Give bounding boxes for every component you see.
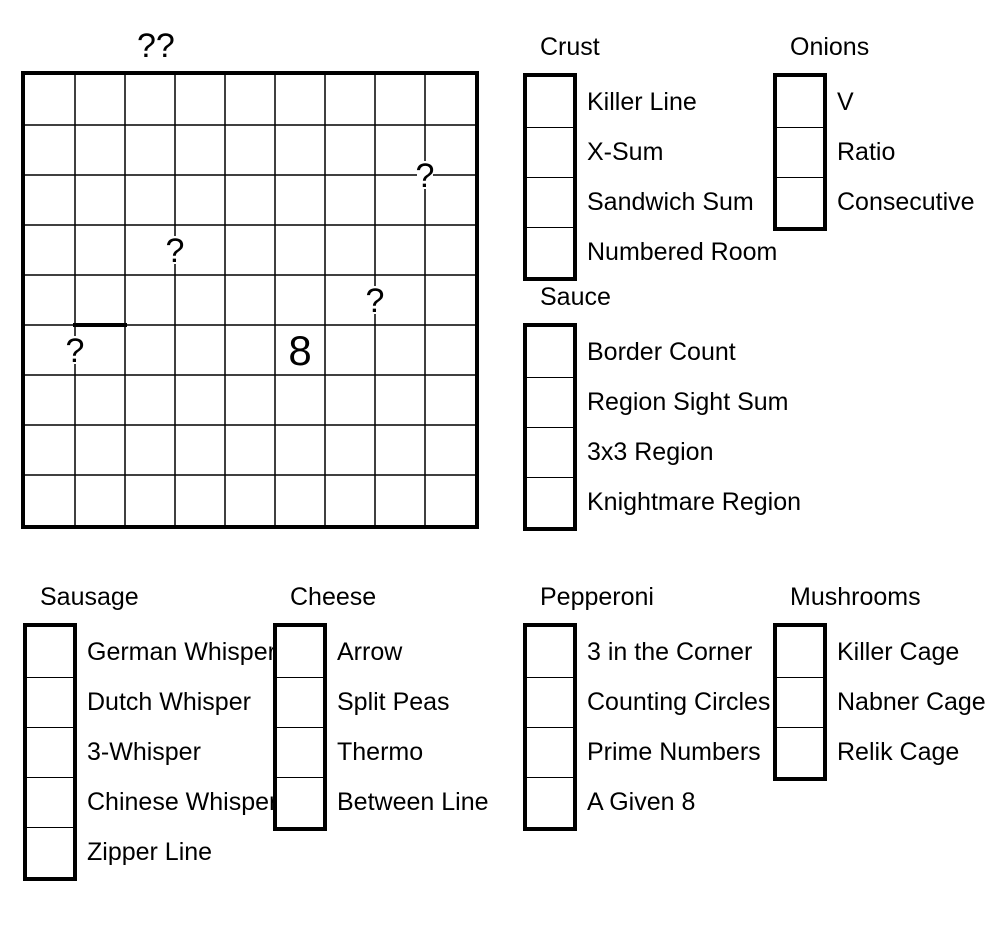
checkbox-sausage-1[interactable] xyxy=(27,627,73,677)
constraint-label-sauce-3: 3x3 Region xyxy=(587,427,801,477)
grid-cell[interactable] xyxy=(225,125,275,175)
checkbox-mushrooms-1[interactable] xyxy=(777,627,823,677)
checkbox-sauce-3[interactable] xyxy=(527,427,573,477)
grid-cell[interactable] xyxy=(125,125,175,175)
checkbox-column xyxy=(523,323,577,531)
checkbox-pepperoni-4[interactable] xyxy=(527,777,573,827)
checkbox-pepperoni-1[interactable] xyxy=(527,627,573,677)
constraint-label-cheese-2: Split Peas xyxy=(337,677,489,727)
grid-cell[interactable] xyxy=(325,175,375,225)
constraint-label-crust-2: X-Sum xyxy=(587,127,777,177)
grid-cell[interactable] xyxy=(125,425,175,475)
constraint-label-sauce-1: Border Count xyxy=(587,327,801,377)
grid-cell[interactable] xyxy=(375,425,425,475)
grid-cell[interactable] xyxy=(275,425,325,475)
checkbox-sauce-1[interactable] xyxy=(527,327,573,377)
grid-cell[interactable] xyxy=(325,125,375,175)
grid-cell[interactable] xyxy=(425,475,475,525)
constraint-group-sausage: Sausage German WhisperDutch Whisper3-Whi… xyxy=(23,583,277,881)
constraint-label-crust-1: Killer Line xyxy=(587,77,777,127)
group-title: Onions xyxy=(773,33,975,62)
checkbox-onions-1[interactable] xyxy=(777,77,823,127)
checkbox-crust-3[interactable] xyxy=(527,177,573,227)
constraint-label-sausage-5: Zipper Line xyxy=(87,827,277,877)
constraint-label-sausage-2: Dutch Whisper xyxy=(87,677,277,727)
grid-cell[interactable] xyxy=(325,475,375,525)
grid-cell[interactable] xyxy=(225,175,275,225)
grid-cell[interactable] xyxy=(75,375,125,425)
group-title: Mushrooms xyxy=(773,583,986,612)
given-digit: 8 xyxy=(288,327,311,374)
checkbox-mushrooms-3[interactable] xyxy=(777,727,823,777)
grid-cell[interactable] xyxy=(325,425,375,475)
group-title: Pepperoni xyxy=(523,583,770,612)
checkbox-pepperoni-3[interactable] xyxy=(527,727,573,777)
sudoku-grid[interactable]: ????8 xyxy=(21,71,479,529)
grid-cell[interactable] xyxy=(75,475,125,525)
label-column: German WhisperDutch Whisper3-WhisperChin… xyxy=(87,627,277,877)
checkbox-sauce-4[interactable] xyxy=(527,477,573,527)
checkbox-sausage-3[interactable] xyxy=(27,727,73,777)
group-title: Sauce xyxy=(523,283,801,312)
grid-cell[interactable] xyxy=(425,275,475,325)
checkbox-mushrooms-2[interactable] xyxy=(777,677,823,727)
grid-cell[interactable] xyxy=(275,175,325,225)
grid-cell[interactable] xyxy=(25,375,75,425)
constraint-label-cheese-4: Between Line xyxy=(337,777,489,827)
label-column: VRatioConsecutive xyxy=(837,77,975,227)
constraint-label-sausage-3: 3-Whisper xyxy=(87,727,277,777)
grid-cell[interactable] xyxy=(325,375,375,425)
grid-cell[interactable] xyxy=(275,225,325,275)
checkbox-column xyxy=(273,623,327,831)
grid-cell[interactable] xyxy=(275,475,325,525)
checkbox-onions-3[interactable] xyxy=(777,177,823,227)
grid-cell[interactable] xyxy=(175,75,225,125)
question-mark-clue: ? xyxy=(416,157,435,195)
constraint-group-onions: Onions VRatioConsecutive xyxy=(773,33,975,231)
grid-cell[interactable] xyxy=(375,225,425,275)
grid-cell[interactable] xyxy=(225,275,275,325)
grid-cell[interactable] xyxy=(75,125,125,175)
constraint-label-sauce-2: Region Sight Sum xyxy=(587,377,801,427)
grid-cell[interactable] xyxy=(225,475,275,525)
checkbox-pepperoni-2[interactable] xyxy=(527,677,573,727)
grid-cell[interactable] xyxy=(75,175,125,225)
constraint-group-crust: Crust Killer LineX-SumSandwich SumNumber… xyxy=(523,33,777,281)
checkbox-column xyxy=(523,73,577,281)
constraint-label-onions-2: Ratio xyxy=(837,127,975,177)
constraint-group-mushrooms: Mushrooms Killer CageNabner CageRelik Ca… xyxy=(773,583,986,781)
constraint-label-sausage-1: German Whisper xyxy=(87,627,277,677)
grid-cell[interactable] xyxy=(25,175,75,225)
grid-cell[interactable] xyxy=(275,125,325,175)
grid-cell[interactable] xyxy=(175,375,225,425)
grid-cell[interactable] xyxy=(125,75,175,125)
checkbox-column xyxy=(773,73,827,231)
grid-cell[interactable] xyxy=(425,375,475,425)
label-column: ArrowSplit PeasThermoBetween Line xyxy=(337,627,489,827)
grid-cell[interactable] xyxy=(175,125,225,175)
grid-cell[interactable] xyxy=(225,225,275,275)
grid-cell[interactable] xyxy=(75,75,125,125)
constraint-label-crust-3: Sandwich Sum xyxy=(587,177,777,227)
grid-cell[interactable] xyxy=(25,275,75,325)
grid-cell[interactable] xyxy=(25,475,75,525)
checkbox-column xyxy=(23,623,77,881)
constraint-label-pepperoni-2: Counting Circles xyxy=(587,677,770,727)
question-mark-clue: ? xyxy=(166,232,185,270)
constraint-label-mushrooms-3: Relik Cage xyxy=(837,727,986,777)
grid-cell[interactable] xyxy=(75,275,125,325)
constraint-label-cheese-3: Thermo xyxy=(337,727,489,777)
constraint-label-pepperoni-1: 3 in the Corner xyxy=(587,627,770,677)
checkbox-sausage-4[interactable] xyxy=(27,777,73,827)
grid-cell[interactable] xyxy=(325,325,375,375)
checkbox-crust-1[interactable] xyxy=(527,77,573,127)
grid-cell[interactable] xyxy=(75,425,125,475)
constraint-group-sauce: Sauce Border CountRegion Sight Sum3x3 Re… xyxy=(523,283,801,531)
grid-cell[interactable] xyxy=(275,375,325,425)
grid-cell[interactable] xyxy=(225,75,275,125)
checkbox-sausage-5[interactable] xyxy=(27,827,73,877)
grid-cell[interactable] xyxy=(125,375,175,425)
grid-cell[interactable] xyxy=(125,475,175,525)
grid-cell[interactable] xyxy=(175,425,225,475)
grid-cell[interactable] xyxy=(25,75,75,125)
constraint-label-onions-3: Consecutive xyxy=(837,177,975,227)
grid-cell[interactable] xyxy=(425,325,475,375)
checkbox-crust-2[interactable] xyxy=(527,127,573,177)
constraint-label-cheese-1: Arrow xyxy=(337,627,489,677)
grid-cell[interactable] xyxy=(425,225,475,275)
label-column: Killer LineX-SumSandwich SumNumbered Roo… xyxy=(587,77,777,277)
group-title: Cheese xyxy=(273,583,489,612)
grid-cell[interactable] xyxy=(225,425,275,475)
grid-cell[interactable] xyxy=(125,325,175,375)
constraint-group-cheese: Cheese ArrowSplit PeasThermoBetween Line xyxy=(273,583,489,831)
label-column: 3 in the CornerCounting CirclesPrime Num… xyxy=(587,627,770,827)
grid-cell[interactable] xyxy=(175,175,225,225)
grid-cell[interactable] xyxy=(275,75,325,125)
constraint-label-mushrooms-2: Nabner Cage xyxy=(837,677,986,727)
grid-cell[interactable] xyxy=(425,75,475,125)
constraint-label-sauce-4: Knightmare Region xyxy=(587,477,801,527)
group-title: Crust xyxy=(523,33,777,62)
grid-cell[interactable] xyxy=(375,375,425,425)
grid-cell[interactable] xyxy=(325,75,375,125)
constraint-label-sausage-4: Chinese Whisper xyxy=(87,777,277,827)
grid-cell[interactable] xyxy=(225,375,275,425)
grid-cell[interactable] xyxy=(25,225,75,275)
constraint-group-pepperoni: Pepperoni 3 in the CornerCounting Circle… xyxy=(523,583,770,831)
grid-cell[interactable] xyxy=(175,325,225,375)
constraint-label-crust-4: Numbered Room xyxy=(587,227,777,277)
grid-cell[interactable] xyxy=(375,75,425,125)
grid-cell[interactable] xyxy=(25,425,75,475)
grid-cell[interactable] xyxy=(125,275,175,325)
grid-cell[interactable] xyxy=(75,225,125,275)
checkbox-cheese-2[interactable] xyxy=(277,677,323,727)
grid-cell[interactable] xyxy=(325,225,375,275)
constraint-label-mushrooms-1: Killer Cage xyxy=(837,627,986,677)
grid-cell[interactable] xyxy=(25,125,75,175)
checkbox-column xyxy=(523,623,577,831)
grid-cell[interactable] xyxy=(175,475,225,525)
question-mark-clue: ? xyxy=(366,282,385,320)
group-title: Sausage xyxy=(23,583,277,612)
checkbox-cheese-3[interactable] xyxy=(277,727,323,777)
checkbox-column xyxy=(773,623,827,781)
grid-cell[interactable] xyxy=(375,325,425,375)
label-column: Border CountRegion Sight Sum3x3 RegionKn… xyxy=(587,327,801,527)
grid-cell[interactable] xyxy=(225,325,275,375)
constraint-label-onions-1: V xyxy=(837,77,975,127)
label-column: Killer CageNabner CageRelik Cage xyxy=(837,627,986,777)
checkbox-onions-2[interactable] xyxy=(777,127,823,177)
checkbox-sauce-2[interactable] xyxy=(527,377,573,427)
constraint-label-pepperoni-3: Prime Numbers xyxy=(587,727,770,777)
checkbox-cheese-4[interactable] xyxy=(277,777,323,827)
grid-cell[interactable] xyxy=(425,425,475,475)
puzzle-canvas: ?? ????8 Crust Killer LineX-SumSandwich … xyxy=(0,0,1000,950)
grid-cell[interactable] xyxy=(125,175,175,225)
grid-title: ?? xyxy=(137,27,175,65)
checkbox-crust-4[interactable] xyxy=(527,227,573,277)
constraint-label-pepperoni-4: A Given 8 xyxy=(587,777,770,827)
grid-cell[interactable] xyxy=(275,275,325,325)
checkbox-sausage-2[interactable] xyxy=(27,677,73,727)
grid-cell[interactable] xyxy=(375,475,425,525)
grid-cell[interactable] xyxy=(175,275,225,325)
question-mark-clue: ? xyxy=(66,332,85,370)
checkbox-cheese-1[interactable] xyxy=(277,627,323,677)
